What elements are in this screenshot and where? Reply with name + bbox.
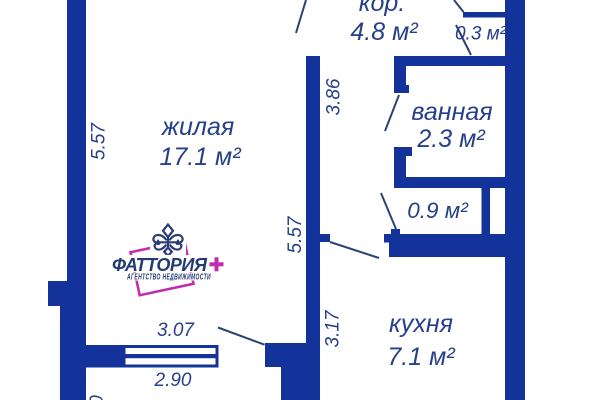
svg-text:2.3 м²: 2.3 м² <box>416 125 486 153</box>
svg-text:5.57: 5.57 <box>285 215 306 253</box>
svg-text:АГЕНТСТВО НЕДВИЖИМОСТИ: АГЕНТСТВО НЕДВИЖИМОСТИ <box>126 273 211 282</box>
svg-text:0: 0 <box>87 395 108 400</box>
svg-text:ФАТТОРИЯ: ФАТТОРИЯ <box>112 255 208 275</box>
svg-text:3.17: 3.17 <box>323 309 344 347</box>
svg-text:0.3 м²: 0.3 м² <box>455 24 507 45</box>
svg-text:кор.: кор. <box>359 0 406 17</box>
svg-text:2.90: 2.90 <box>154 370 192 391</box>
svg-text:3.86: 3.86 <box>324 78 345 115</box>
svg-text:ванная: ванная <box>411 98 492 126</box>
svg-text:0.9 м²: 0.9 м² <box>407 198 469 223</box>
svg-text:5.57: 5.57 <box>89 122 110 160</box>
svg-text:7.1 м²: 7.1 м² <box>387 343 456 371</box>
svg-text:3.07: 3.07 <box>157 320 195 341</box>
svg-text:4.8 м²: 4.8 м² <box>350 18 419 46</box>
svg-text:17.1 м²: 17.1 м² <box>159 143 242 171</box>
svg-text:жилая: жилая <box>161 113 234 141</box>
svg-text:кухня: кухня <box>389 310 453 338</box>
